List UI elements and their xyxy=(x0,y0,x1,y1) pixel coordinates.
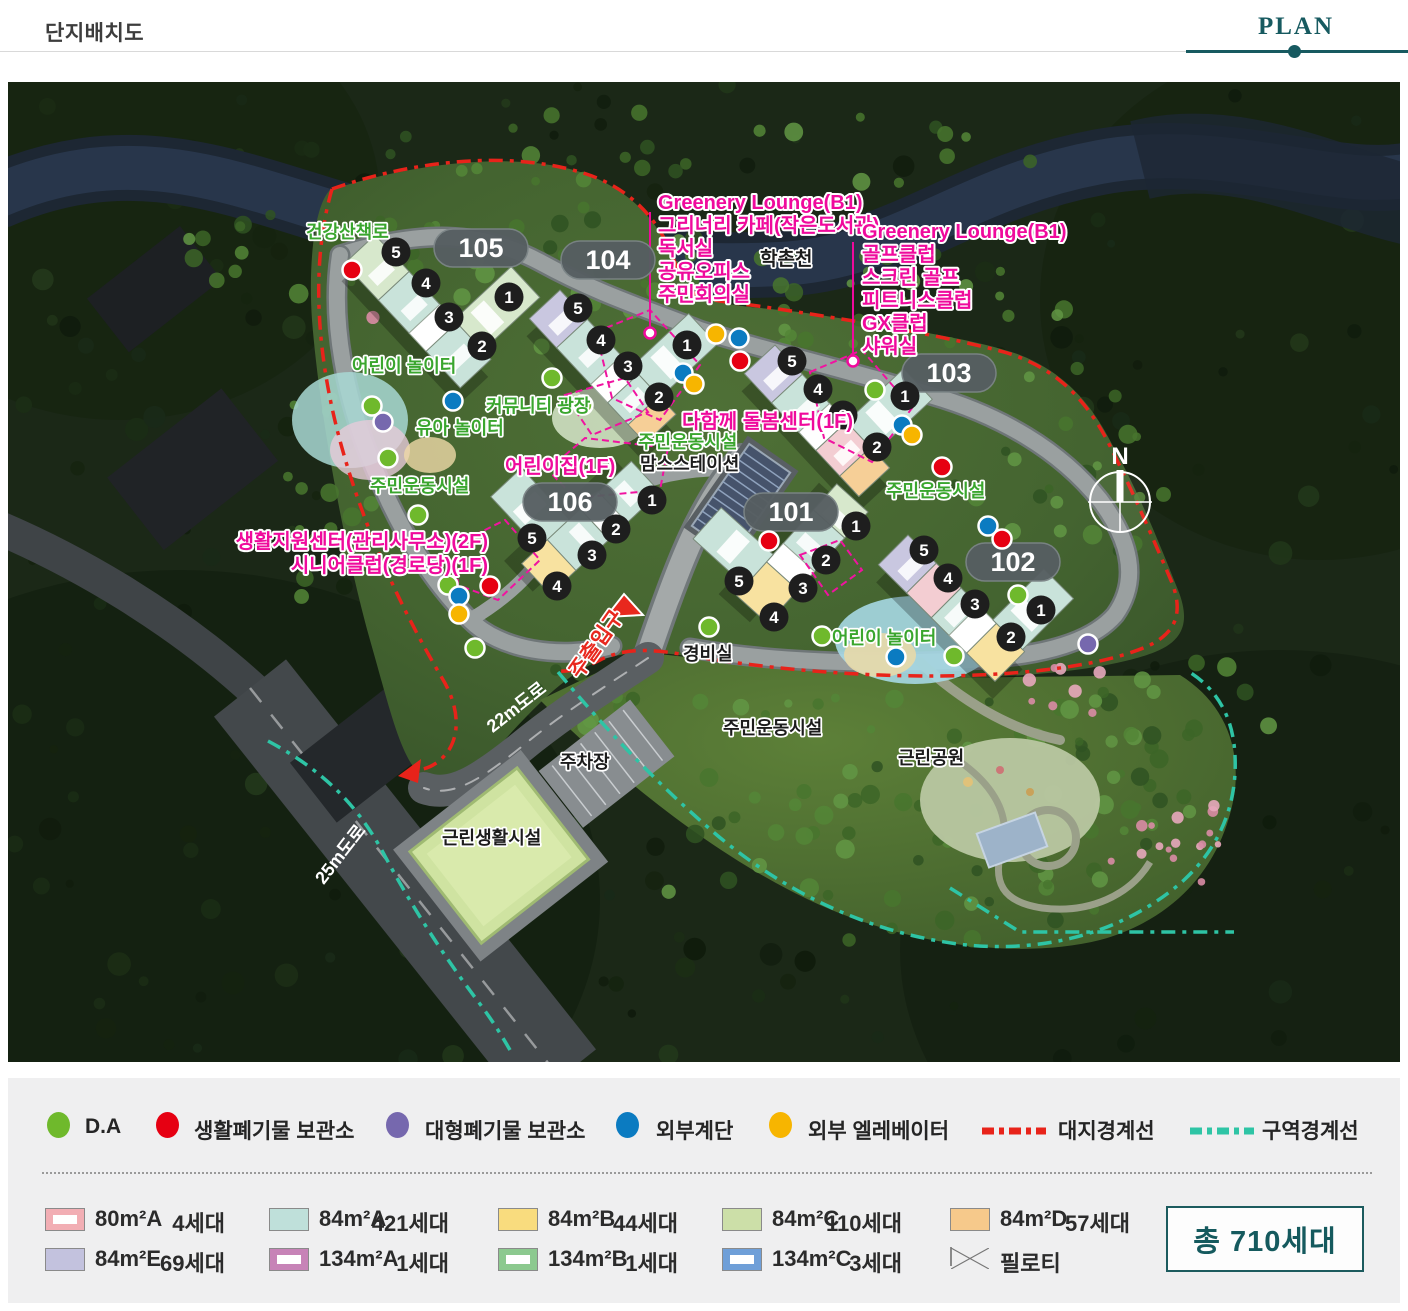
annotation-line: GX클럽 xyxy=(862,312,928,335)
unit-number-label: 5 xyxy=(527,529,536,548)
annotation-line: 골프클럽 xyxy=(862,243,936,266)
site-plan-map: 1051041031061011025432154321543211234512… xyxy=(8,82,1400,1062)
unit-number-circle: 3 xyxy=(435,303,464,332)
label-health-trail: 건강산책로 xyxy=(306,222,389,242)
annotation-line: 공유오피스 xyxy=(658,260,750,283)
unit-number-label: 1 xyxy=(900,387,909,406)
header-accent-dot xyxy=(1288,45,1301,58)
annotation-line: Greenery Lounge(B1) xyxy=(658,192,862,214)
unit-number-label: 1 xyxy=(682,336,691,355)
unit-number-label: 5 xyxy=(734,572,743,591)
unit-number-label: 3 xyxy=(623,357,632,376)
unit-number-circle: 4 xyxy=(543,572,572,601)
external-elevator-dot xyxy=(685,375,704,394)
external-elevator-dot xyxy=(707,325,726,344)
building-badge-105: 105 xyxy=(434,229,528,267)
unit-legend-pilotis: 필로티 xyxy=(950,1248,952,1274)
unit-number-circle: 4 xyxy=(412,269,441,298)
waste-storage-dot xyxy=(731,352,750,371)
unit-number-circle: 1 xyxy=(1027,596,1056,625)
da-dot xyxy=(379,449,398,468)
da-dot xyxy=(945,647,964,666)
building-badge-106: 106 xyxy=(523,483,617,521)
header-divider xyxy=(0,51,1186,52)
external-stairs-dot xyxy=(444,392,463,411)
unit-number-label: 4 xyxy=(943,569,953,588)
da-dot xyxy=(466,639,485,658)
unit-number-circle: 5 xyxy=(910,536,939,565)
unit-number-label: 5 xyxy=(919,541,928,560)
unit-number-circle: 4 xyxy=(587,326,616,355)
building-badge-label: 104 xyxy=(585,245,630,275)
external-stairs-dot xyxy=(887,648,906,667)
label-sports-facility-3: 주민운동시설 xyxy=(886,481,985,501)
unit-number-label: 1 xyxy=(851,517,860,536)
unit-number-circle: 1 xyxy=(673,331,702,360)
waste-storage-dot xyxy=(933,458,952,477)
annotation-line: 스크린 골프 xyxy=(862,266,960,289)
label-sports-facility-4: 주민운동시설 xyxy=(723,718,822,738)
unit-number-circle: 4 xyxy=(934,564,963,593)
building-badge-label: 106 xyxy=(547,487,592,517)
external-stairs-dot xyxy=(979,517,998,536)
label-guard-post: 경비실 xyxy=(683,644,733,664)
building-badge-103: 103 xyxy=(902,354,996,392)
unit-number-circle: 1 xyxy=(891,382,920,411)
label-river: 학촌천 xyxy=(760,248,812,270)
legend-panel: D.A 생활폐기물 보관소 대형폐기물 보관소 외부계단 외부 엘레베이터 대지… xyxy=(8,1078,1400,1303)
label-neighborhood-facility: 근린생활시설 xyxy=(442,828,541,848)
unit-number-label: 4 xyxy=(596,331,606,350)
annotation-line: 그리너리 카페(작은도서관) xyxy=(658,214,879,237)
label-daycare: 어린이집(1F) xyxy=(505,455,615,478)
annotation-line: 주민회의실 xyxy=(658,283,750,306)
building-badge-102: 102 xyxy=(966,543,1060,581)
unit-number-circle: 3 xyxy=(614,352,643,381)
site-plan-svg: 1051041031061011025432154321543211234512… xyxy=(8,82,1400,1062)
large-waste-storage-dot xyxy=(374,413,393,432)
label-care-center: 다함께 돌봄센터(1F) xyxy=(682,410,853,433)
unit-number-label: 4 xyxy=(552,577,562,596)
unit-number-circle: 2 xyxy=(602,515,631,544)
legend-label: 대지경계선 xyxy=(1058,1115,1155,1145)
legend-label: 외부계단 xyxy=(656,1115,733,1145)
external-elevator-dot xyxy=(769,1112,792,1138)
building-badge-label: 102 xyxy=(990,547,1035,577)
unit-number-circle: 1 xyxy=(842,512,871,541)
unit-number-label: 3 xyxy=(587,546,596,565)
building-badge-101: 101 xyxy=(744,493,838,531)
unit-number-label: 4 xyxy=(813,380,823,399)
legend-label: 대형폐기물 보관소 xyxy=(425,1115,585,1145)
unit-number-circle: 2 xyxy=(645,383,674,412)
legend-label: 외부 엘레베이터 xyxy=(808,1115,949,1145)
legend-label: D.A xyxy=(85,1115,121,1139)
unit-number-label: 1 xyxy=(1036,601,1045,620)
site-boundary-swatch xyxy=(982,1122,1046,1130)
unit-number-circle: 4 xyxy=(760,603,789,632)
total-households-badge: 총 710세대 xyxy=(1166,1206,1364,1272)
unit-number-circle: 1 xyxy=(495,283,524,312)
legend-divider xyxy=(42,1172,1372,1174)
label-sports-facility-2: 주민운동시설 xyxy=(638,432,737,452)
compass-north-label: N xyxy=(1111,443,1128,470)
legend-label: 구역경계선 xyxy=(1262,1115,1359,1145)
da-dot xyxy=(409,506,428,525)
unit-number-circle: 5 xyxy=(564,294,593,323)
da-dot xyxy=(543,369,562,388)
unit-number-label: 2 xyxy=(821,551,830,570)
building-badge-label: 105 xyxy=(458,233,503,263)
unit-number-circle: 5 xyxy=(725,567,754,596)
unit-number-label: 3 xyxy=(970,595,979,614)
unit-number-circle: 5 xyxy=(518,524,547,553)
unit-number-label: 2 xyxy=(611,520,620,539)
district-boundary-swatch xyxy=(1190,1122,1254,1130)
label-toddler-playground: 유아 놀이터 xyxy=(416,418,504,438)
unit-number-circle: 1 xyxy=(638,486,667,515)
label-kids-playground-1: 어린이 놀이터 xyxy=(352,356,456,376)
waste-storage-dot xyxy=(343,261,362,280)
unit-number-circle: 3 xyxy=(961,590,990,619)
unit-number-label: 2 xyxy=(477,337,486,356)
annotation-line: Greenery Lounge(B1) xyxy=(862,221,1066,243)
unit-number-circle: 5 xyxy=(778,347,807,376)
building-badge-104: 104 xyxy=(561,241,655,279)
legend-label: 생활폐기물 보관소 xyxy=(194,1115,354,1145)
unit-number-circle: 2 xyxy=(863,433,892,462)
waste-storage-dot xyxy=(156,1112,179,1138)
label-senior-club: 시니어클럽(경로당)(1F) xyxy=(291,554,488,577)
large-waste-storage-dot xyxy=(386,1112,409,1138)
unit-number-circle: 2 xyxy=(468,332,497,361)
external-stairs-dot xyxy=(616,1112,639,1138)
unit-number-label: 5 xyxy=(573,299,582,318)
label-moms-station: 맘스스테이션 xyxy=(640,454,739,474)
waste-storage-dot xyxy=(481,577,500,596)
label-community-plaza: 커뮤니티 광장 xyxy=(486,396,591,416)
unit-number-circle: 3 xyxy=(578,541,607,570)
unit-number-circle: 4 xyxy=(804,375,833,404)
annotation-line: 피트니스클럽 xyxy=(862,289,972,312)
external-stairs-dot xyxy=(450,587,469,606)
label-support-center: 생활지원센터(관리사무소)(2F) xyxy=(236,530,488,553)
unit-number-label: 2 xyxy=(872,438,881,457)
label-sports-facility-1: 주민운동시설 xyxy=(370,476,469,496)
annotation-line: 샤워실 xyxy=(862,335,917,358)
waste-storage-dot xyxy=(760,532,779,551)
large-waste-storage-dot xyxy=(1079,635,1098,654)
label-neighborhood-park: 근린공원 xyxy=(898,748,964,768)
page-header: 단지배치도 PLAN xyxy=(0,0,1408,62)
page-title: 단지배치도 xyxy=(45,17,144,47)
unit-number-label: 1 xyxy=(647,491,656,510)
external-elevator-dot xyxy=(903,426,922,445)
unit-number-circle: 3 xyxy=(789,574,818,603)
unit-number-label: 2 xyxy=(654,388,663,407)
da-dot xyxy=(1009,586,1028,605)
unit-number-label: 3 xyxy=(798,579,807,598)
unit-number-circle: 2 xyxy=(812,546,841,575)
da-dot xyxy=(866,381,885,400)
annotation-line: 독서실 xyxy=(658,237,713,260)
label-parking: 주차장 xyxy=(560,752,610,772)
external-stairs-dot xyxy=(730,329,749,348)
unit-number-label: 4 xyxy=(769,608,779,627)
unit-number-circle: 2 xyxy=(997,623,1026,652)
external-elevator-dot xyxy=(450,605,469,624)
da-dot xyxy=(700,618,719,637)
label-kids-playground-2: 어린이 놀이터 xyxy=(832,628,936,648)
unit-number-label: 5 xyxy=(787,352,796,371)
unit-number-label: 1 xyxy=(504,288,513,307)
building-badge-label: 101 xyxy=(768,497,813,527)
unit-number-label: 4 xyxy=(421,274,431,293)
unit-number-label: 2 xyxy=(1006,628,1015,647)
unit-number-label: 5 xyxy=(391,243,400,262)
da-dot xyxy=(813,627,832,646)
tab-plan[interactable]: PLAN xyxy=(1236,13,1356,41)
building-badge-label: 103 xyxy=(926,358,971,388)
unit-number-label: 3 xyxy=(444,308,453,327)
da-dot xyxy=(47,1112,70,1138)
